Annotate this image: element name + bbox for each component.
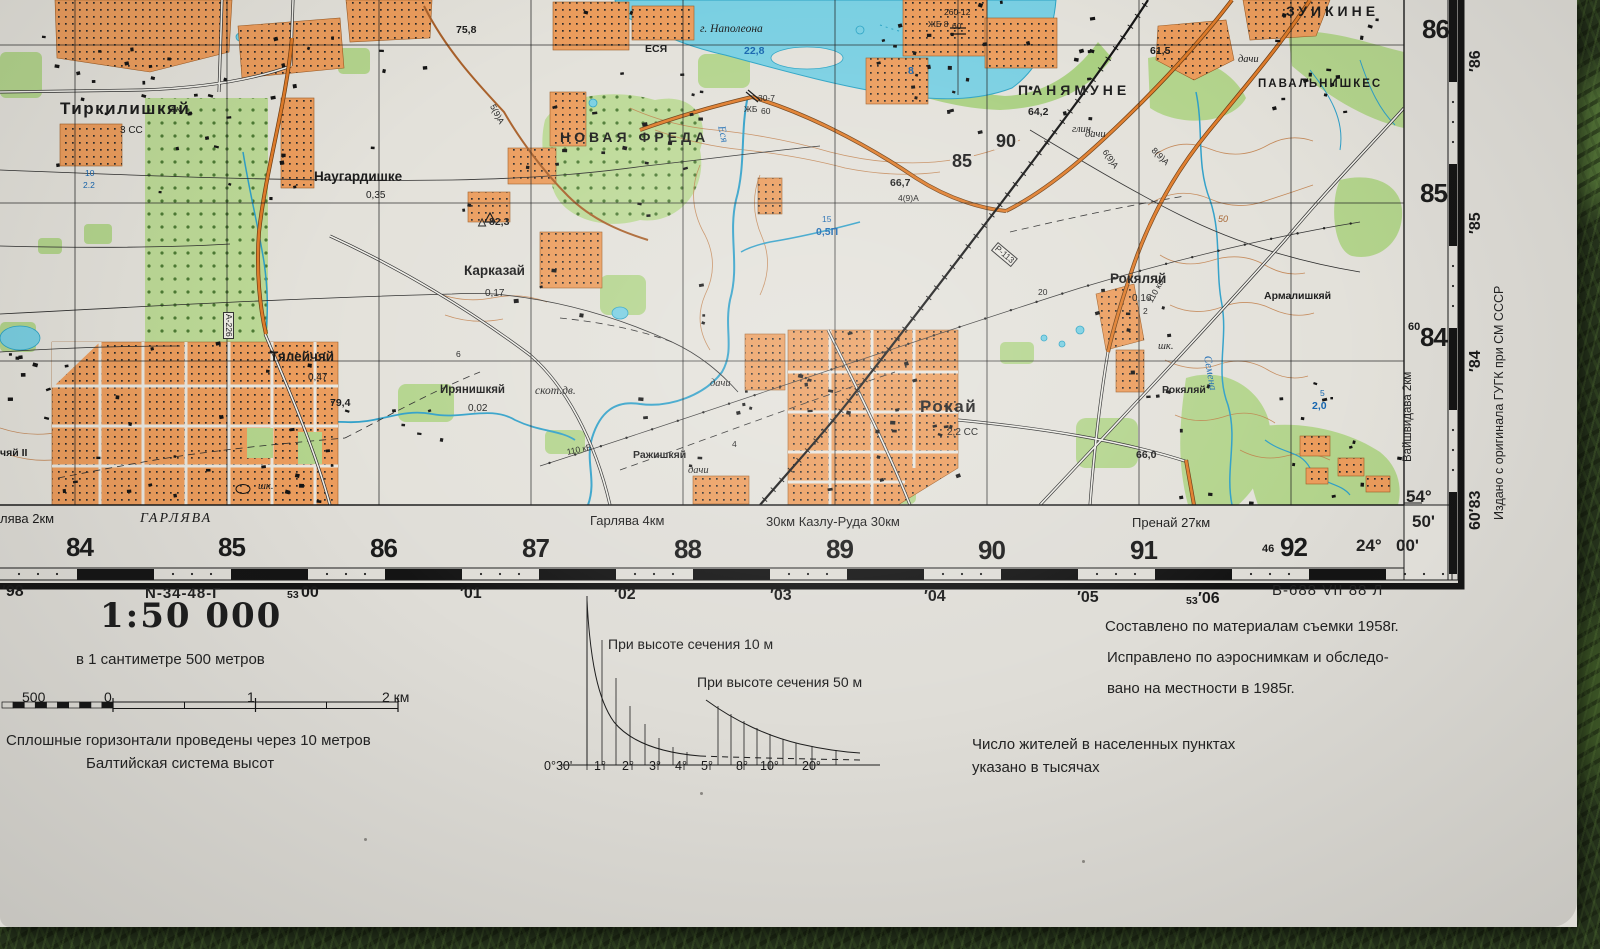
- road-destination-label: 30км Казлу-Руда 30км: [766, 515, 900, 528]
- corner-longitude-minutes: 00': [1396, 536, 1419, 556]
- place-name-label: Рокяляй: [1162, 385, 1206, 396]
- road-code-label: ЖБ 8: [928, 20, 949, 29]
- edge-number: ′84: [1468, 350, 1484, 372]
- population-label: 0,47: [308, 373, 327, 383]
- grid-inner-label: 90: [994, 132, 1018, 150]
- edge-number-prefix: 53: [1186, 596, 1198, 607]
- place-name-label: чяй II: [0, 448, 27, 459]
- slope-angle-label: 2°: [622, 760, 634, 773]
- edge-number: ′05: [1077, 590, 1099, 606]
- feature-label: шк.: [168, 105, 183, 116]
- water-label: 2,0: [1312, 401, 1327, 412]
- water-label: 15: [822, 215, 831, 224]
- population-note-line1: Число жителей в населенных пунктах: [972, 736, 1235, 753]
- scale-subtitle: в 1 сантиметре 500 метров: [76, 651, 265, 668]
- feature-label: дачи: [1238, 55, 1259, 66]
- feature-label: г. Наполеона: [700, 24, 763, 36]
- edge-number: 60′83: [1468, 491, 1484, 530]
- road-code-label: 110 кВ: [566, 443, 593, 457]
- survey-note-line2: Исправлено по аэроснимкам и обследо-: [1107, 649, 1389, 666]
- survey-note-line1: Составлено по материалам съемки 1958г.: [1105, 618, 1399, 635]
- population-label: 0,17: [485, 289, 504, 299]
- grid-number: 89: [826, 536, 853, 562]
- road-code-label: 2: [1143, 307, 1148, 316]
- slope-angle-label: 8°: [736, 760, 748, 773]
- elevation-label: 79,4: [330, 398, 350, 409]
- map-labels-layer: Тиркилишкяй3 ССНаугардишке0,35НОВАЯ ФРЕД…: [0, 0, 1577, 927]
- edge-number-prefix: 53: [287, 590, 299, 601]
- corner-latitude-degrees: 54°: [1406, 487, 1432, 507]
- water-label: 22,8: [744, 46, 764, 57]
- slope-diagram-label-10m: При высоте сечения 10 м: [608, 636, 773, 652]
- edge-number: ′01: [460, 586, 482, 602]
- slope-angle-label: 0°30': [544, 760, 572, 773]
- scale-title: 1:50 000: [100, 597, 282, 636]
- corner-longitude-degrees: 24°: [1356, 536, 1382, 556]
- place-name-label: Ражишкяй: [633, 450, 686, 461]
- edge-number: ′98: [2, 584, 24, 600]
- road-code-label: 20: [1038, 288, 1047, 297]
- scalebar-number: 1: [247, 690, 255, 704]
- road-code-label: 6: [456, 350, 461, 359]
- water-label: 0,5П: [816, 227, 838, 238]
- edge-number: ′04: [924, 589, 946, 605]
- road-destination-label: Пренай 27км: [1132, 516, 1210, 529]
- slope-angle-label: 20°: [802, 760, 821, 773]
- feature-label: скот.дв.: [535, 386, 576, 398]
- edge-number: ′86: [1468, 50, 1484, 72]
- grid-number: 85: [1420, 180, 1447, 206]
- feature-label: глин.: [1072, 125, 1094, 136]
- place-name-label: ПАНЯМУНЕ: [1018, 83, 1130, 97]
- photo-scene: Тиркилишкяй3 ССНаугардишке0,35НОВАЯ ФРЕД…: [0, 0, 1600, 949]
- scalebar-number: 500: [22, 690, 45, 704]
- grid-number-prefix: 60: [1408, 322, 1420, 333]
- road-code-label: 60: [761, 107, 770, 116]
- place-name-label: ПАВАЛЬНИШКЕС: [1258, 79, 1382, 91]
- grid-number: 88: [674, 536, 701, 562]
- sheet-designation: N-34-48-Г: [145, 585, 222, 602]
- road-code-label: 5(9)А: [488, 103, 505, 125]
- road-code-label: 8(9)А: [1150, 146, 1171, 167]
- paper-speck: [1082, 860, 1085, 863]
- slope-angle-label: 10°: [760, 760, 779, 773]
- place-name-label: Карказай: [464, 264, 525, 278]
- paper-speck: [364, 838, 367, 841]
- population-label: 0,02: [468, 404, 487, 414]
- grid-number: 86: [1422, 16, 1449, 42]
- print-code: В-688 VII 88 Л: [1272, 582, 1383, 599]
- population-note-line2: указано в тысячах: [972, 759, 1100, 776]
- grid-number: 86: [370, 535, 397, 561]
- contour-label: 50: [1218, 215, 1228, 224]
- road-code-label: ЖБ: [744, 105, 757, 114]
- place-name-label: ЕСЯ: [645, 44, 667, 55]
- elevation-label: △ 82,3: [478, 217, 509, 228]
- place-name-label: Армалишкяй: [1264, 291, 1331, 302]
- corner-latitude-minutes: 50': [1412, 512, 1435, 532]
- population-label: 3 СС: [120, 126, 143, 136]
- elevation-label: 61,5: [1150, 46, 1170, 57]
- elevation-label: 75,8: [456, 25, 476, 36]
- scalebar-number: 2 км: [382, 690, 409, 704]
- edge-number: ′02: [614, 587, 636, 603]
- river-name-label: Еся: [715, 125, 729, 144]
- slope-diagram-label-50m: При высоте сечения 50 м: [697, 674, 862, 690]
- place-name-label: Ирянишкяй: [440, 385, 505, 397]
- road-destination-label: Гарлява 4км: [590, 514, 664, 527]
- place-name-label: Рокай: [920, 398, 977, 415]
- place-name-label: Наугардишке: [314, 170, 402, 184]
- feature-label: шк.: [258, 482, 273, 493]
- grid-number: 85: [218, 534, 245, 560]
- water-label: 2.2: [83, 181, 95, 190]
- road-code-label: 260-12: [944, 8, 970, 17]
- survey-note-line3: вано на местности в 1985г.: [1107, 680, 1295, 697]
- edge-number: ′06: [1198, 591, 1220, 607]
- grid-number-prefix: 46: [1262, 544, 1274, 555]
- settlement-margin-label: ГАРЛЯВА: [140, 512, 212, 526]
- water-label: 10: [85, 169, 94, 178]
- road-code-label: А-226: [224, 312, 235, 339]
- scalebar-number: 0: [104, 690, 112, 704]
- population-label: 2,2 СС: [947, 428, 978, 438]
- feature-label: дачи: [688, 466, 709, 477]
- road-destination-label: лява 2км: [0, 512, 54, 525]
- edition-note-vertical: Издано с оригинала ГУГК при СМ СССР: [1492, 286, 1506, 520]
- slope-angle-label: 3°: [649, 760, 661, 773]
- grid-number: 87: [522, 535, 549, 561]
- population-label: 0,35: [366, 191, 385, 201]
- grid-number: 92: [1280, 534, 1307, 560]
- place-name-label: Тялейчяй: [270, 350, 334, 364]
- elevation-label: 64,2: [1028, 107, 1048, 118]
- elevation-label: 66,7: [890, 178, 910, 189]
- grid-number: 84: [66, 534, 93, 560]
- road-code-label: 60: [952, 22, 961, 31]
- edge-number: 00: [301, 585, 319, 601]
- feature-label: шк.: [1158, 342, 1173, 353]
- slope-angle-label: 5°: [701, 760, 713, 773]
- grid-number: 91: [1130, 537, 1157, 563]
- road-code-label: 6(9)А: [1101, 148, 1120, 170]
- road-code-label: Р-113: [991, 242, 1018, 267]
- adjacent-sheet-label: Вайшвидава 2км: [1402, 372, 1415, 462]
- slope-angle-label: 1°: [594, 760, 606, 773]
- feature-label: дачи: [710, 379, 731, 390]
- place-name-label: ЗУИКИНЕ: [1286, 4, 1379, 18]
- place-name-label: НОВАЯ ФРЕДА: [560, 130, 709, 144]
- road-code-label: 4: [732, 440, 737, 449]
- road-code-label: 30-7: [758, 94, 775, 103]
- slope-angle-label: 4°: [675, 760, 687, 773]
- elevation-label: 66,0: [1136, 450, 1156, 461]
- edge-number: ′03: [770, 588, 792, 604]
- height-datum-note: Балтийская система высот: [86, 755, 274, 772]
- edge-number: ′85: [1468, 212, 1484, 234]
- road-code-label: 4(9)А: [898, 194, 919, 203]
- grid-number: 84: [1420, 324, 1447, 350]
- contour-interval-note: Сплошные горизонтали проведены через 10 …: [6, 732, 371, 749]
- water-label: 8: [908, 66, 914, 77]
- grid-number: 90: [978, 537, 1005, 563]
- paper-speck: [700, 792, 703, 795]
- water-label: 5: [1320, 389, 1325, 398]
- grid-inner-label: 85: [950, 152, 974, 170]
- map-sheet: Тиркилишкяй3 ССНаугардишке0,35НОВАЯ ФРЕД…: [0, 0, 1577, 927]
